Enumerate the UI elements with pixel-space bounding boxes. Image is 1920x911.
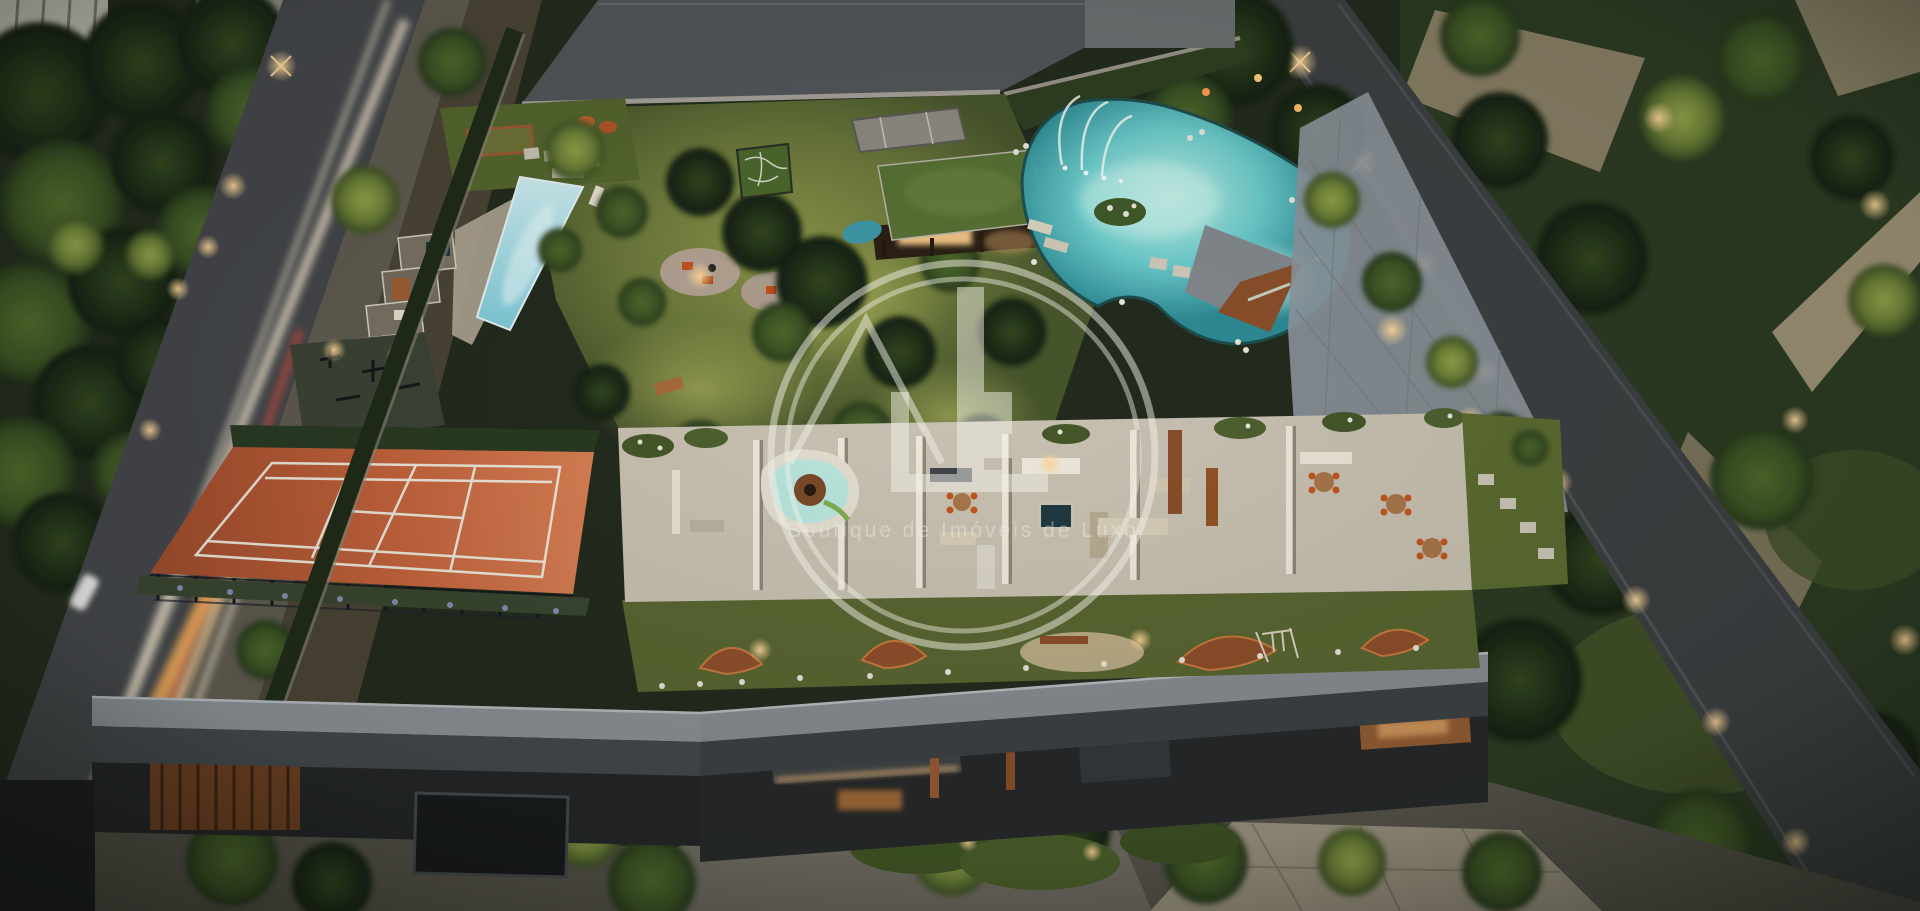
monogram-descender — [977, 545, 995, 589]
monogram-stem — [957, 287, 984, 492]
monogram-bar — [984, 392, 1012, 458]
aerial-rendering: Boutique de Imóveis de Luxo — [0, 0, 1920, 911]
watermark-tagline: Boutique de Imóveis de Luxo — [787, 519, 1139, 542]
rendering-canvas: Boutique de Imóveis de Luxo — [0, 0, 1920, 911]
